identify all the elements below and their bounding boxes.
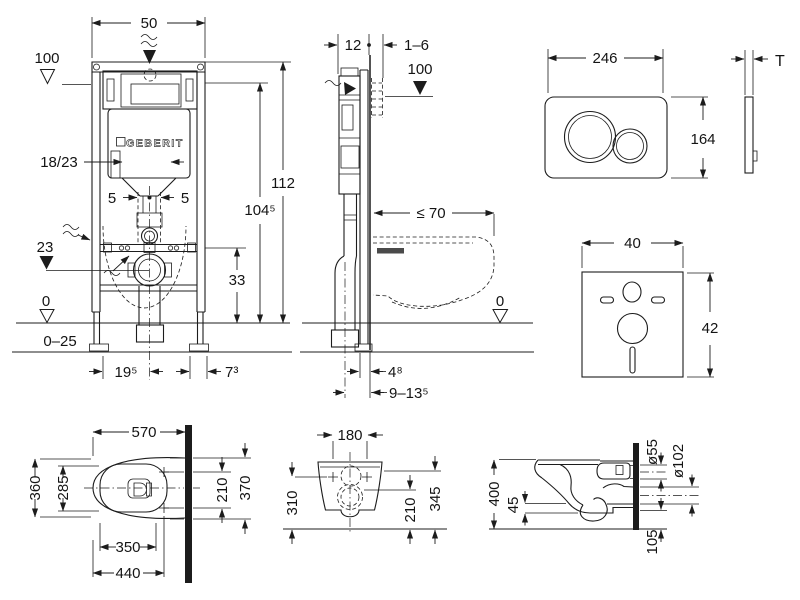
front-width-dim: 50 [141, 15, 158, 32]
trap-curve [580, 498, 607, 521]
wall-section [185, 425, 192, 583]
level-marker-icon [41, 70, 55, 84]
front-fixing-height-dim: 33 [229, 272, 246, 289]
sound-insulation-mat: 40 42 [582, 235, 718, 377]
wall-finish-zone [372, 83, 382, 115]
side-floor-zero-dim: 0 [496, 293, 504, 310]
flush-plate: 246 164 T [545, 49, 785, 178]
wc-outline-dashed [373, 237, 494, 306]
flush-plate-front [545, 97, 667, 178]
cistern-side [339, 76, 360, 194]
mat-slot [630, 347, 635, 373]
mat-height-dim: 42 [702, 320, 719, 337]
front-frame-height-dim: 112 [271, 175, 295, 192]
plate-width-dim: 246 [592, 50, 617, 67]
mat-outline [582, 272, 683, 377]
flush-connector [597, 463, 630, 479]
wc-depth-dim: 570 [131, 424, 156, 441]
flush-plate-side [745, 97, 753, 173]
side-wc-depth-dim: ≤ 70 [416, 205, 445, 222]
wc-side-view: 400 45 ø55 ø102 105 [486, 439, 699, 554]
frame-front-view: 50 GEBERIT [12, 15, 295, 381]
rear-outlet-height-dim: 210 [402, 497, 419, 522]
side-level-dim: 100 [407, 61, 432, 78]
foot-plate [90, 344, 109, 351]
front-opening-dim: 18/23 [40, 154, 78, 171]
installation-diagram: 50 GEBERIT [0, 0, 800, 600]
front-floor-zero-dim: 0 [42, 293, 50, 310]
flush-hole-dashed [341, 466, 361, 486]
foot-plate [190, 344, 209, 351]
wcside-flush-dia-dim: ø55 [644, 439, 661, 465]
wc-inner-width-dim: 285 [55, 475, 72, 500]
front-plate-level-dim: 104⁵ [244, 202, 275, 219]
mat-slot [652, 297, 665, 303]
wall-section [633, 443, 639, 530]
plate-height-dim: 164 [690, 131, 715, 148]
front-floor-range-dim: 0–25 [43, 333, 76, 350]
rear-holes-spacing-dim: 180 [337, 427, 362, 444]
wc-inner-depth-dim: 350 [115, 539, 140, 556]
level-marker-icon [493, 310, 508, 323]
technical-drawing-page: 50 GEBERIT [0, 0, 800, 600]
rear-holes-height-dim: 310 [284, 490, 301, 515]
inspection-window [131, 84, 179, 104]
vapour-icon [141, 35, 157, 47]
vapour-icon [63, 225, 79, 237]
plate-thickness-dim: T [775, 53, 785, 70]
vapour-icon [104, 271, 120, 276]
wc-outline-dashed [103, 226, 186, 308]
wcside-gap-dim: 45 [505, 497, 522, 514]
mat-slot [601, 297, 614, 303]
wcside-bottom-height-dim: 105 [644, 529, 661, 554]
frame-side-view: 12 1–6 ≤ 70 100 0 [300, 34, 534, 402]
rear-top-height-dim: 345 [427, 486, 444, 511]
front-level-dim: 100 [34, 50, 59, 67]
mat-flush-hole [623, 282, 641, 302]
vapour-arrow-icon [344, 82, 356, 95]
bowl-front-nose [535, 460, 542, 478]
screw-icon [198, 64, 204, 70]
screw-icon [94, 64, 100, 70]
wc-depth-to-holes-dim: 440 [115, 565, 140, 582]
side-cistern-depth-dim: 12 [345, 37, 362, 54]
mat-outlet-hole [618, 314, 648, 344]
flush-button-large [565, 112, 616, 163]
front-offset-right-dim: 5 [181, 190, 189, 207]
flush-bend-side [335, 256, 357, 330]
front-dist-center-dim: 19⁵ [115, 364, 138, 381]
fixing-bolt [377, 248, 404, 254]
wc-rear-view: 180 310 210 345 [283, 427, 447, 544]
brand-logo-text: GEBERIT [126, 138, 184, 150]
drain-socket [137, 325, 164, 342]
mat-width-dim: 40 [624, 235, 641, 252]
brand-logo-square [117, 138, 126, 147]
side-rail-depth-dim: 4⁸ [388, 364, 403, 381]
side-outlet-offset-dim: 9–13⁵ [389, 385, 429, 402]
level-marker-icon [40, 310, 54, 323]
wc-seat-width-dim: 370 [237, 475, 254, 500]
flush-button-small [613, 129, 647, 163]
front-outlet-height-dim: 23 [37, 239, 54, 256]
wc-top-view: 570 360 285 350 440 210 370 [27, 424, 254, 583]
front-offset-left-dim: 5 [108, 190, 116, 207]
wc-holes-spacing-dim: 210 [214, 477, 231, 502]
wc-width-dim: 360 [27, 475, 44, 500]
front-dist-edge-dim: 7³ [225, 364, 238, 381]
wcside-outlet-dia-dim: ø102 [670, 444, 687, 478]
wcside-rim-height-dim: 400 [486, 481, 503, 506]
side-wall-finish-dim: 1–6 [404, 37, 429, 54]
